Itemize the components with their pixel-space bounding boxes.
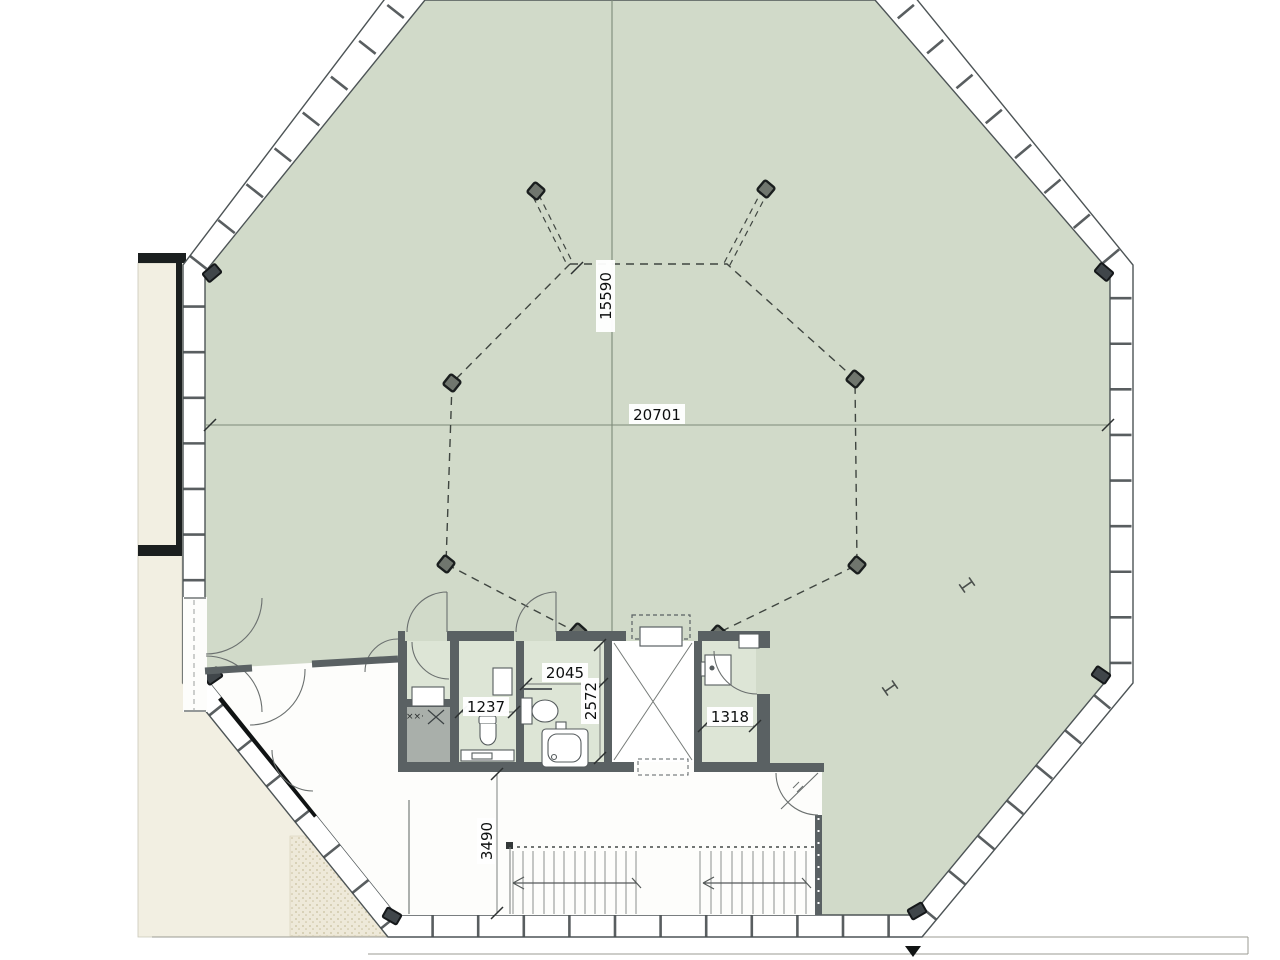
wc-toilet-tank bbox=[479, 716, 496, 724]
partition-wall bbox=[312, 659, 398, 664]
dim-label-3490: 3490 bbox=[477, 818, 496, 864]
bathtub-drain bbox=[552, 755, 557, 760]
terrace-wall-edge bbox=[176, 263, 182, 545]
door-opening bbox=[514, 630, 556, 641]
wc-toilet-bowl bbox=[480, 724, 496, 745]
bath-toilet-tank bbox=[521, 698, 532, 724]
door-opening bbox=[756, 648, 770, 694]
dim-label-20701: 20701 bbox=[629, 404, 685, 424]
store-sink-tab bbox=[701, 662, 705, 676]
door-opening bbox=[183, 597, 207, 712]
dim-text: 20701 bbox=[633, 406, 681, 424]
terrace-wall-mid bbox=[138, 545, 182, 556]
wc-sink bbox=[493, 668, 512, 695]
store-sink-tap bbox=[710, 666, 714, 670]
dim-label-1318: 1318 bbox=[707, 707, 753, 726]
floor-plan-svg: ××· bbox=[0, 0, 1280, 960]
partition-wall bbox=[205, 668, 252, 671]
dim-text: 1318 bbox=[711, 708, 749, 726]
dim-text: 1237 bbox=[467, 698, 505, 716]
terrace-wall-top bbox=[138, 253, 186, 263]
partition-wall bbox=[766, 763, 824, 772]
dim-text: 2045 bbox=[546, 664, 584, 682]
shaft-marks: ××· bbox=[406, 712, 424, 722]
wc-vanity-basin bbox=[472, 753, 492, 759]
floor-plan-page: ××· bbox=[0, 0, 1280, 960]
elevator-rear-opening bbox=[634, 762, 694, 772]
dim-text: 15590 bbox=[597, 272, 615, 320]
elevator-sill bbox=[640, 627, 682, 646]
dim-label-15590: 15590 bbox=[596, 260, 615, 332]
store-cabinet bbox=[739, 634, 759, 648]
dim-label-1237: 1237 bbox=[463, 697, 509, 716]
dim-text: 2572 bbox=[582, 682, 600, 720]
dim-label-2572: 2572 bbox=[581, 678, 600, 724]
door-opening bbox=[405, 630, 447, 641]
cloak-shelf bbox=[412, 687, 444, 706]
dim-text: 3490 bbox=[478, 822, 496, 860]
bath-toilet-bowl bbox=[532, 700, 558, 722]
